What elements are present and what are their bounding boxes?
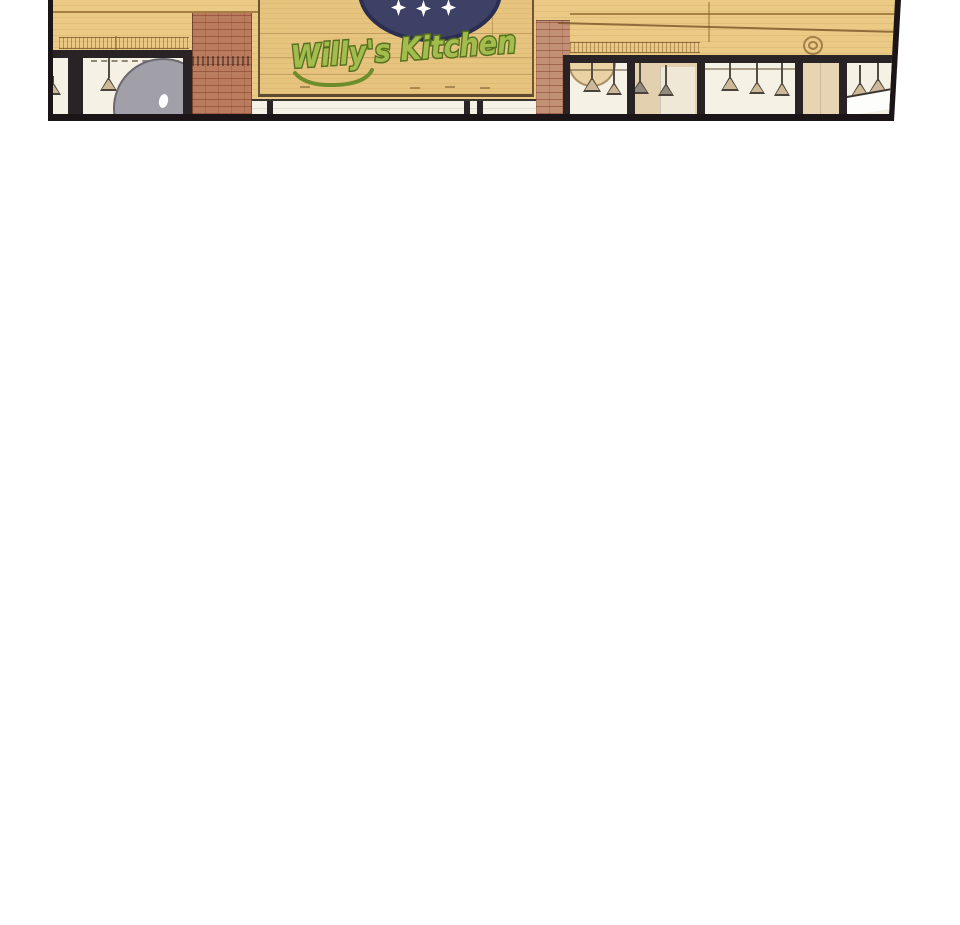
storefront-scene: Willy's Kitchen: [53, 0, 895, 114]
pendant-lamp: [583, 63, 601, 92]
strip-grain: [252, 108, 536, 109]
window-pane: [570, 63, 627, 114]
lamp-rod: [108, 58, 110, 78]
wall-seam: [708, 2, 710, 42]
window-pane-beige: [635, 63, 697, 114]
window-mullion: [627, 63, 635, 114]
lamp-rod: [639, 63, 641, 81]
window-pane: [83, 58, 183, 114]
pendant-lamp: [774, 63, 790, 96]
lamp-rod: [613, 63, 615, 83]
wall-seam: [115, 36, 117, 50]
window-mullion: [183, 58, 192, 114]
wood-knot-ring: [803, 36, 823, 55]
brick-column-left: [192, 13, 252, 114]
lamp-rod: [591, 63, 593, 78]
window-strip: [252, 99, 536, 114]
lamp-rod: [53, 76, 54, 83]
window-header-right: [563, 55, 895, 63]
pendant-lamp: [606, 63, 622, 95]
window-pane: [847, 63, 895, 114]
window-header-left: [53, 50, 192, 58]
window-mullion: [697, 63, 705, 114]
round-gray-object: [113, 58, 183, 114]
window-pane: [705, 63, 795, 114]
window-pane: [53, 58, 68, 114]
pane-seam: [820, 63, 821, 114]
pendant-lamp: [53, 76, 61, 95]
lamp-shade: [606, 83, 622, 95]
window-mullion: [267, 101, 273, 114]
lamp-shade: [53, 83, 61, 95]
pendant-lamp: [658, 65, 674, 96]
lamp-rod: [781, 63, 783, 83]
pendant-lamp: [749, 63, 765, 94]
window-pane-beige: [803, 63, 839, 114]
pendant-lamp: [635, 63, 649, 94]
window-mullion: [464, 101, 470, 114]
window-mullion: [795, 63, 803, 114]
lamp-rod: [859, 65, 861, 83]
pendant-lamp: [100, 58, 117, 91]
window-mullion: [68, 58, 83, 114]
lamp-shade: [635, 81, 649, 94]
lamp-shade: [774, 83, 790, 96]
lamp-shade: [583, 78, 601, 92]
comic-panel: Willy's Kitchen: [48, 0, 901, 121]
window-mullion: [839, 63, 847, 114]
lamp-rod: [665, 65, 667, 84]
lamp-shade: [658, 84, 674, 96]
lamp-shade: [100, 78, 117, 91]
lamp-shade: [721, 77, 739, 91]
sign-text: Willy's Kitchen: [290, 24, 518, 76]
wall-hatch-strip: [59, 37, 189, 49]
lamp-shade: [749, 82, 765, 94]
comic-page: Willy's Kitchen: [0, 0, 960, 925]
sign-lettering: Willy's Kitchen: [260, 0, 532, 94]
wall-sloped-line: [558, 22, 895, 33]
brick-band: [192, 56, 252, 66]
lamp-rod: [729, 63, 731, 77]
wall-plank-line: [570, 13, 895, 15]
window-mullion: [477, 101, 483, 114]
wall-hatch-strip: [570, 42, 700, 53]
wood-knot-inner: [808, 41, 818, 50]
lamp-rod: [877, 63, 879, 79]
window-mullion: [563, 63, 570, 114]
sign-board: Willy's Kitchen: [258, 0, 534, 97]
lamp-rod: [756, 63, 758, 82]
pendant-lamp: [721, 63, 739, 91]
